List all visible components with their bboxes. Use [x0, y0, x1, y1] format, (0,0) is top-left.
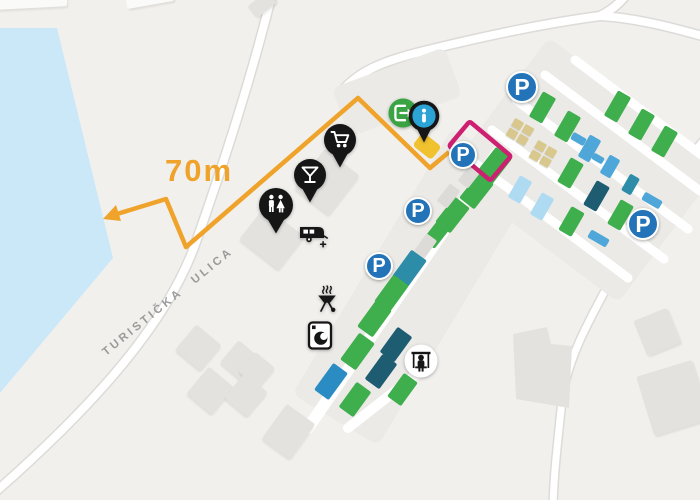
caravan-icon[interactable] — [295, 222, 329, 250]
amenities-layer — [0, 0, 700, 500]
playground-icon[interactable] — [402, 342, 440, 380]
info-pin[interactable] — [406, 98, 442, 143]
bbq-icon[interactable] — [311, 284, 343, 316]
laundry-icon[interactable] — [305, 319, 335, 353]
toilets-pin[interactable] — [255, 184, 297, 234]
info-icon — [422, 109, 426, 123]
heat-waves — [323, 286, 332, 293]
campsite-map: TURISTIČKA ULICA 70m PPPPP — [0, 0, 700, 500]
